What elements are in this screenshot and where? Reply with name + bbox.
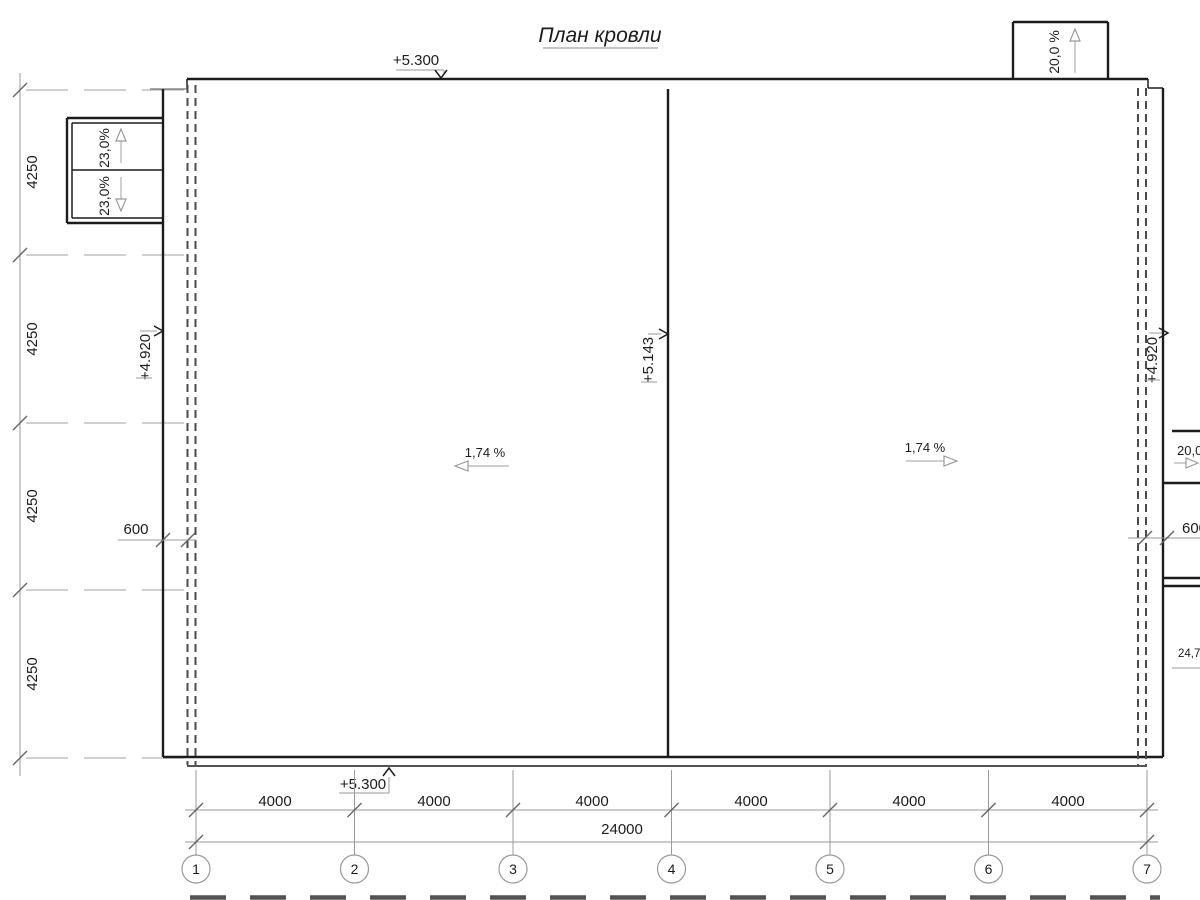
span-dim-label: 4000 (892, 793, 925, 810)
roof-outline (150, 79, 1163, 766)
main-slope-right-label: 1,74 % (905, 440, 946, 455)
elevation-top-label: +5.300 (393, 52, 439, 69)
grid-number: 6 (985, 861, 993, 877)
slope-arrowhead-up-icon (116, 129, 126, 141)
span-dim-label: 4000 (734, 793, 767, 810)
canopy-slope-upper-label: 23,0% (96, 128, 112, 168)
elevation-left-label: +4.920 (137, 334, 154, 380)
span-dim-label: 4000 (575, 793, 608, 810)
grid-number: 2 (351, 861, 359, 877)
grid-number: 7 (1143, 861, 1151, 877)
span-dim-label: 4000 (1051, 793, 1084, 810)
span-dim-label: 4000 (258, 793, 291, 810)
elevation-ridge-label: +5.143 (640, 337, 657, 383)
dim-label-4250: 4250 (24, 155, 41, 188)
dim-label-4250: 4250 (24, 657, 41, 690)
arrow-down-icon (435, 70, 447, 78)
right-parapet-dim-label: 600 (1182, 520, 1200, 537)
slope-arrowhead-down-icon (116, 199, 126, 211)
right-lower-slope-label: 24,7 (1178, 648, 1200, 660)
elevation-marks: +5.300 +5.300 +4.920 +5.143 +4.920 (136, 52, 1168, 793)
drawing-title: План кровли (538, 24, 662, 47)
elevation-bottom-label: +5.300 (340, 776, 386, 793)
main-slope-left-label: 1,74 % (465, 445, 506, 460)
grid-number: 5 (826, 861, 834, 877)
grid-number: 4 (668, 861, 676, 877)
span-dim-label: 4000 (417, 793, 450, 810)
bottom-dimensions: 4000 4000 4000 4000 4000 4000 24000 (185, 770, 1158, 855)
slope-arrowhead-right-icon (1186, 458, 1198, 468)
slope-arrowhead-right-icon (944, 456, 957, 466)
dim-label-4250: 4250 (24, 322, 41, 355)
left-parapet-dim: 600 (118, 521, 196, 547)
main-slope-labels: 1,74 % 1,74 % (455, 440, 957, 471)
left-parapet-dim-label: 600 (123, 521, 148, 538)
slope-arrowhead-left-icon (455, 461, 468, 471)
dim-label-4250: 4250 (24, 489, 41, 522)
arrow-up-icon (383, 768, 395, 776)
right-slope-label: 20,0 % (1177, 443, 1200, 458)
grid-number: 3 (509, 861, 517, 877)
top-dormer: 20,0 % (1013, 22, 1108, 79)
elevation-right-label: +4.920 (1144, 337, 1161, 383)
left-canopy: 23,0% 23,0% (67, 118, 163, 223)
slope-arrowhead-up-icon (1070, 29, 1080, 41)
grid-number: 1 (192, 861, 200, 877)
roof-plan-drawing: План кровли 4250 4250 4250 4250 (0, 0, 1200, 900)
canopy-slope-lower-label: 23,0% (96, 176, 112, 216)
total-dim-label: 24000 (601, 821, 643, 838)
dormer-slope-label: 20,0 % (1046, 30, 1062, 74)
grid-bubbles: 1 2 3 4 5 6 7 (182, 855, 1161, 883)
